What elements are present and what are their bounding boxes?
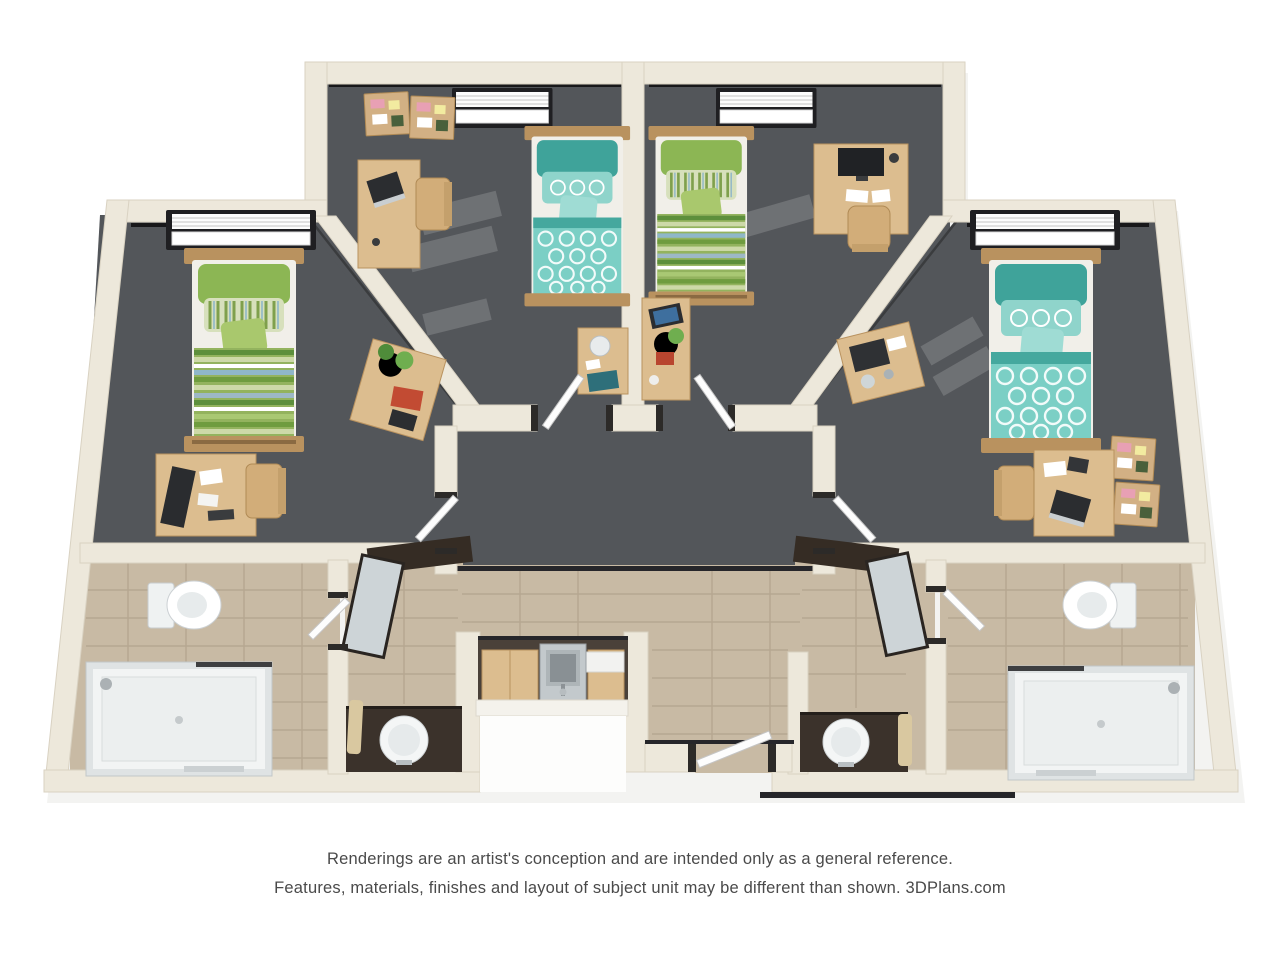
window-bedroom-left — [166, 210, 316, 250]
window-bedroom-center-right — [716, 88, 817, 128]
towel-left — [347, 700, 364, 755]
towel-right — [898, 714, 912, 766]
toilet-right — [1063, 581, 1136, 629]
corkboard-center-left-1 — [364, 92, 410, 136]
bed-teal-right — [981, 248, 1101, 453]
corkboard-right-2 — [1113, 482, 1160, 527]
faucet-left — [396, 760, 412, 765]
monitor — [838, 148, 884, 176]
shower-right — [1008, 666, 1194, 780]
side-table-center-right — [642, 298, 690, 400]
kitchen-recess — [480, 716, 626, 792]
desk-right — [1034, 450, 1114, 536]
corkboard-center-left-2 — [410, 96, 455, 140]
kitchen-sink — [540, 644, 586, 702]
pen-cup — [889, 153, 899, 163]
bed-green-center-right — [648, 126, 754, 306]
disclaimer-line-2: Features, materials, finishes and layout… — [0, 874, 1280, 903]
kitchen-appliance — [586, 652, 624, 672]
window-bedroom-right — [970, 210, 1120, 250]
floor-plan-page: Renderings are an artist's conception an… — [0, 0, 1280, 960]
nightstand-center-left — [578, 328, 628, 394]
desk-chair-center-right — [848, 206, 890, 252]
desk-chair-right — [994, 466, 1034, 520]
faucet-right — [838, 762, 854, 767]
plant-pot — [656, 352, 674, 365]
desk-chair-left — [246, 464, 286, 518]
toilet-left — [148, 581, 221, 629]
bed-teal-center-left — [524, 126, 630, 306]
kitchen-counter-front — [476, 700, 628, 716]
desk-center-left — [358, 160, 420, 268]
desk-chair-center-left — [416, 178, 452, 230]
window-bedroom-center-left — [452, 88, 553, 128]
kitchenette — [476, 636, 628, 792]
corkboard-right-1 — [1109, 436, 1156, 481]
bed-green-left — [184, 248, 304, 452]
desk-left — [156, 454, 256, 536]
shower-left — [86, 662, 272, 776]
entry-threshold — [760, 792, 1015, 798]
kettle — [590, 336, 610, 356]
disclaimer-line-1: Renderings are an artist's conception an… — [0, 845, 1280, 874]
floor-plan-rendering — [0, 0, 1280, 960]
disclaimer-caption: Renderings are an artist's conception an… — [0, 845, 1280, 903]
